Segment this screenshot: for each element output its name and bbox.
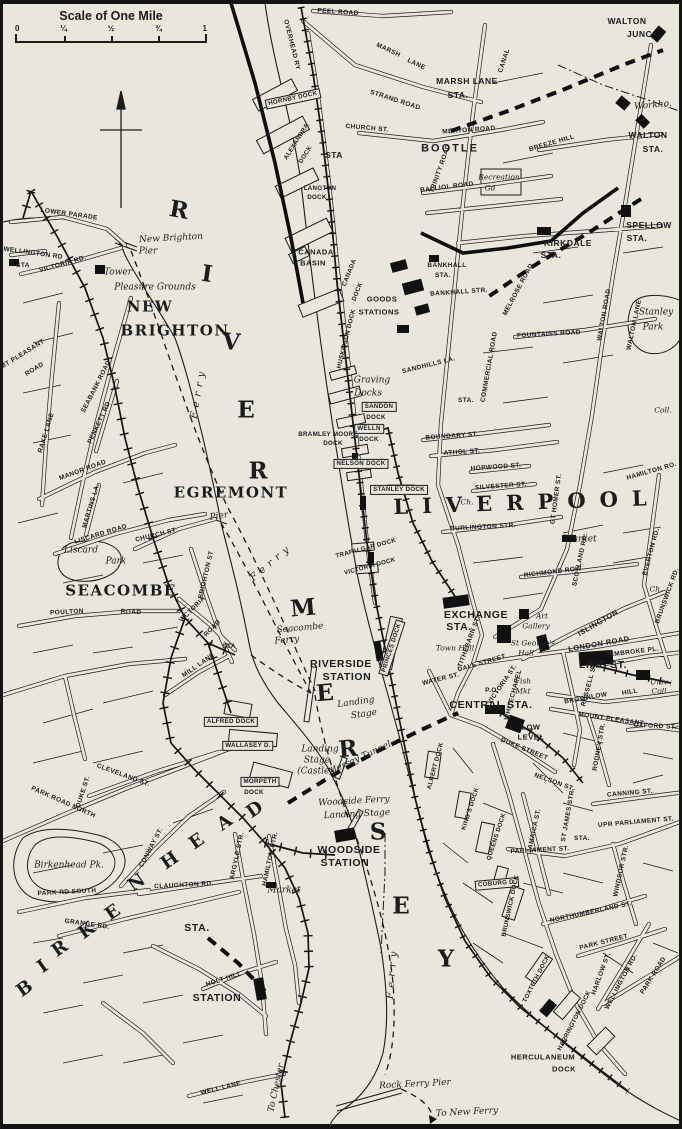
map-label: MARTINS LA.	[82, 483, 102, 529]
map-label: MORPETH	[240, 777, 279, 787]
map-label: R	[248, 460, 267, 483]
map-label: H	[158, 849, 182, 874]
map-label: POULTON	[50, 609, 84, 617]
map-label: STATION	[193, 993, 242, 1004]
map-label: STA.	[435, 273, 451, 280]
map-label: BURLINGTON STR.	[450, 523, 516, 533]
scale-tick: ½	[108, 24, 115, 33]
map-label: UPR PARLIAMENT ST.	[598, 816, 674, 829]
map-label: Art	[536, 612, 548, 620]
map-label: WELLINGTON RD	[3, 247, 63, 262]
map-label: ROAD	[24, 362, 45, 379]
map-label: Rock Ferry Pier	[379, 1079, 451, 1092]
map-label: Park	[643, 324, 664, 333]
map-label: PARLIAMENT ST.	[510, 846, 569, 856]
map-label: Town Hall	[436, 644, 474, 652]
map-label: BREEZE HILL	[529, 134, 576, 153]
map-label: Gallery	[522, 622, 550, 630]
map-label: Pier	[209, 511, 229, 522]
map-label: LIME ST.	[579, 660, 627, 671]
map-label: BOUNDARY ST.	[425, 432, 479, 442]
map-label: Docks	[354, 390, 382, 399]
map-label: GOODS	[367, 295, 397, 303]
scale-bar-quarter-tick	[111, 36, 113, 41]
map-label: Mkt	[515, 687, 530, 695]
map-label: STA.	[458, 398, 474, 405]
map-label: E	[186, 831, 208, 854]
map-label: HAMILTON RO.	[626, 462, 678, 483]
map-label: Ferry	[249, 542, 296, 583]
map-label: Hall	[518, 649, 534, 657]
map-label: STA	[222, 644, 236, 651]
map-label: HARRINGTON DOCK	[557, 990, 593, 1052]
map-label: HAMILTON STR.	[262, 831, 280, 887]
scale-tick: ¾	[155, 24, 162, 33]
map-label: HUSKISSON DOCK	[337, 309, 358, 370]
map-label: Coll.	[654, 406, 671, 414]
map-label: NEW	[127, 300, 174, 315]
map-label: BANKHALL STR.	[430, 288, 488, 299]
map-label: DOCK	[323, 441, 342, 447]
map-label: BRAMLEY MOORE	[298, 432, 357, 438]
map-label: WALTON	[607, 17, 646, 26]
map-label: PEMBROKE PL.	[605, 646, 660, 659]
map-label: BRUNSWICK RD.	[655, 567, 681, 624]
scale-bar-quarter-tick	[64, 36, 66, 41]
map-label: Y	[438, 948, 454, 971]
map-label: EVERTON RD.	[643, 528, 662, 577]
map-label: Gd	[485, 184, 496, 192]
map-label: HARLOW ST.	[591, 952, 612, 996]
map-labels: PEEL ROADWALTONJUNC.MARSHLANEMARSH LANES…	[3, 3, 679, 1126]
map-label: HILL	[622, 688, 639, 697]
map-label: R	[49, 937, 72, 960]
map-label: Univ	[650, 678, 668, 686]
map-label: E	[102, 902, 124, 925]
map-label: ROAD	[120, 609, 141, 617]
map-label: To New Ferry	[436, 1107, 499, 1119]
map-label: WINDSOR STR.	[613, 844, 630, 897]
map-label: CLEVELAND ST.	[96, 763, 151, 788]
map-label: TOXTETH DOCK	[522, 954, 551, 1003]
map-label: A	[214, 812, 236, 835]
map-label: Market	[267, 887, 300, 896]
map-label: STRAND ROAD	[369, 90, 421, 112]
map-label: SPELLOW	[626, 221, 672, 230]
map-label: Coll	[651, 687, 666, 695]
map-label: PENKETT RD	[87, 401, 112, 445]
map-label: Stanley	[639, 309, 673, 318]
map-label: LANE	[406, 58, 426, 72]
scale-bar: Scale of One Mile 0 ¼ ½ ¾ 1	[15, 9, 207, 43]
map-label: M	[289, 595, 316, 620]
map-label: PARK ROAD	[640, 956, 668, 995]
map-label: PRINCES DOCK	[378, 619, 405, 676]
map-label: NELSON DOCK	[333, 459, 388, 469]
map-label: LOW	[522, 723, 541, 731]
map-label: WALLASEY D.	[222, 741, 273, 751]
map-label: New Brighton	[139, 233, 203, 245]
map-label: Graving	[354, 377, 390, 386]
map-label: ALFRED DOCK	[204, 717, 258, 727]
scale-tick: ¼	[60, 24, 67, 33]
map-label: NELSON ST.	[533, 773, 575, 794]
map-label: CHURCH ST.	[345, 124, 389, 134]
map-label: STATIONS	[359, 308, 400, 316]
map-label: WELLN	[354, 424, 384, 434]
map-label: STATION	[321, 858, 370, 869]
map-label: MARSH LANE	[436, 77, 498, 86]
map-label: Ferry	[190, 366, 209, 419]
map-label: Pleasure Grounds	[114, 284, 195, 293]
map-label: ALBERT DOCK	[427, 742, 446, 790]
map-label: E	[392, 895, 410, 918]
map-label: VICTORIA DOCK	[344, 557, 397, 577]
map-label: I	[200, 262, 214, 286]
map-label: BRIGHTON ST	[198, 550, 215, 599]
map-label: ISLINGTON	[577, 608, 620, 637]
scale-bar-quarter-tick	[158, 36, 160, 41]
map-label: STA.	[448, 91, 469, 100]
map-label: STA.	[627, 234, 648, 243]
map-canvas: PEEL ROADWALTONJUNC.MARSHLANEMARSH LANES…	[0, 0, 682, 1129]
map-label: WATER ST.	[422, 672, 460, 687]
map-label: E	[237, 399, 255, 422]
map-label: E	[315, 681, 334, 705]
map-label: DOCK	[366, 415, 385, 421]
map-label: DOCK	[552, 1065, 576, 1073]
map-label: OXFORD ST.	[633, 723, 676, 732]
map-label: BALLIOL ROAD	[420, 181, 474, 194]
map-label: LEVEL	[518, 733, 545, 741]
map-label: HERCULANEUM	[511, 1053, 575, 1061]
map-label: STA.	[184, 923, 210, 934]
map-label: PARK RD SOUTH	[37, 888, 96, 898]
map-label: Ch.	[650, 585, 663, 593]
map-label: FOUNTAINS ROAD	[517, 330, 581, 340]
map-label: SEACOMBE	[65, 584, 177, 599]
scale-bar-rule	[15, 34, 207, 43]
map-label: STA	[325, 151, 343, 160]
map-label: SANDON	[362, 402, 397, 412]
map-label: RODNEY STR.	[593, 722, 608, 771]
map-label: P.O.	[485, 688, 499, 695]
map-label: PEEL ROAD	[317, 8, 359, 17]
map-label: To Chester	[267, 1063, 286, 1113]
map-label: N	[125, 871, 149, 895]
map-label: LANGTON	[304, 186, 337, 192]
map-label: STA.	[643, 145, 664, 154]
map-label: DOCK	[298, 145, 314, 165]
map-label: SANDHILLS LA.	[402, 356, 457, 376]
map-label: NORTHUMBERLAND ST.	[550, 901, 633, 925]
map-label: BASIN	[300, 259, 326, 267]
map-label: EGREMONT	[174, 486, 289, 501]
map-label: WOODSIDE	[317, 845, 380, 856]
map-label: QUEENS DOCK	[486, 813, 507, 862]
map-label: MILL LANE	[182, 652, 217, 679]
map-label: MANOR ROAD	[59, 459, 108, 482]
map-label: HORNBY DOCK	[265, 88, 322, 110]
map-label: STA.	[541, 251, 562, 260]
map-label: BANKHALL	[427, 263, 466, 270]
map-label: DOCK	[351, 282, 364, 302]
map-label: MERTON ROAD	[442, 126, 496, 136]
map-label: OVERHEAD RY	[282, 19, 301, 71]
map-label: STATION	[323, 672, 372, 683]
map-label: DUKE ST.	[76, 775, 92, 808]
map-label: WALTON	[628, 131, 667, 140]
map-label: CLAUGHTON RD.	[154, 881, 214, 891]
map-label: V	[221, 330, 241, 354]
map-label: LOWER PARADE	[40, 208, 98, 222]
map-label: JUNC.	[627, 30, 655, 39]
map-label: I	[34, 957, 51, 977]
map-label: LIVERPOOL	[393, 487, 661, 517]
scale-tick: 1	[203, 24, 207, 33]
scale-bar-tick-labels: 0 ¼ ½ ¾ 1	[15, 24, 207, 33]
map-label: ATHOL ST.	[444, 448, 481, 457]
map-label: RIVERSIDE	[310, 659, 372, 670]
map-label: D	[243, 798, 266, 822]
map-label: STA.	[574, 836, 590, 843]
map-label: ROAD	[203, 619, 222, 638]
map-label: Seacombe	[276, 622, 324, 635]
map-label: Ferry	[274, 635, 299, 646]
map-label: RAKE LANE	[38, 412, 56, 454]
map-label: DOCK	[307, 195, 326, 201]
map-label: CANADA	[298, 248, 334, 256]
map-label: CANAL	[498, 48, 512, 74]
map-label: St George's	[511, 639, 555, 647]
map-label: DUKE STREET	[499, 738, 548, 763]
map-label: R	[168, 197, 191, 223]
map-label: Ferry	[386, 946, 401, 999]
map-label: Workho.	[634, 100, 672, 112]
map-label: BRIGHTON	[120, 324, 229, 339]
map-label: Park	[106, 558, 127, 567]
map-label: VICTORIA	[179, 596, 208, 625]
scale-tick: 0	[15, 24, 19, 33]
map-label: Stage	[304, 757, 330, 766]
scale-bar-title: Scale of One Mile	[15, 9, 207, 23]
map-label: CHURCH ST	[135, 528, 177, 544]
map-label: Stage	[350, 709, 377, 722]
map-label: CENTRAL STA.	[449, 700, 532, 711]
map-label: CANADA	[342, 259, 358, 288]
map-label: Recreation	[478, 173, 520, 181]
map-label: PARK STREET	[579, 934, 629, 952]
map-label: S	[370, 821, 387, 844]
map-label: MARSH	[375, 43, 401, 60]
map-label: HOPWOOD ST.	[471, 463, 522, 473]
map-label: Woodside Ferry	[318, 796, 390, 809]
map-label: HOLT HILL	[205, 971, 242, 989]
map-label: STA	[16, 263, 30, 270]
map-label: COMMERCIAL ROAD	[481, 331, 500, 403]
map-label: KIRKDALE	[544, 239, 592, 248]
map-label: WALTON ROAD	[597, 288, 613, 341]
map-label: CANNING ST.	[607, 789, 653, 799]
map-label: Tower	[104, 269, 132, 278]
map-label: DOCK	[359, 437, 378, 443]
map-label: Fish	[515, 677, 531, 685]
map-label: TRAFALGAR DOCK	[335, 538, 397, 560]
map-label: Pier	[139, 248, 158, 257]
map-label: KING'S DOCK	[461, 787, 481, 831]
map-label: WELL LANE	[200, 1081, 242, 1097]
map-label: MELROSE ROAD	[503, 263, 536, 317]
map-label: Landing	[301, 746, 338, 755]
map-label: DOCK	[244, 790, 263, 796]
map-label: B	[14, 977, 37, 1000]
map-label: ARGYLE STR.	[230, 832, 246, 880]
map-label: STA.	[446, 622, 472, 633]
map-label: Liscard	[64, 547, 98, 556]
map-label: Birkenhead Pk.	[34, 862, 104, 871]
